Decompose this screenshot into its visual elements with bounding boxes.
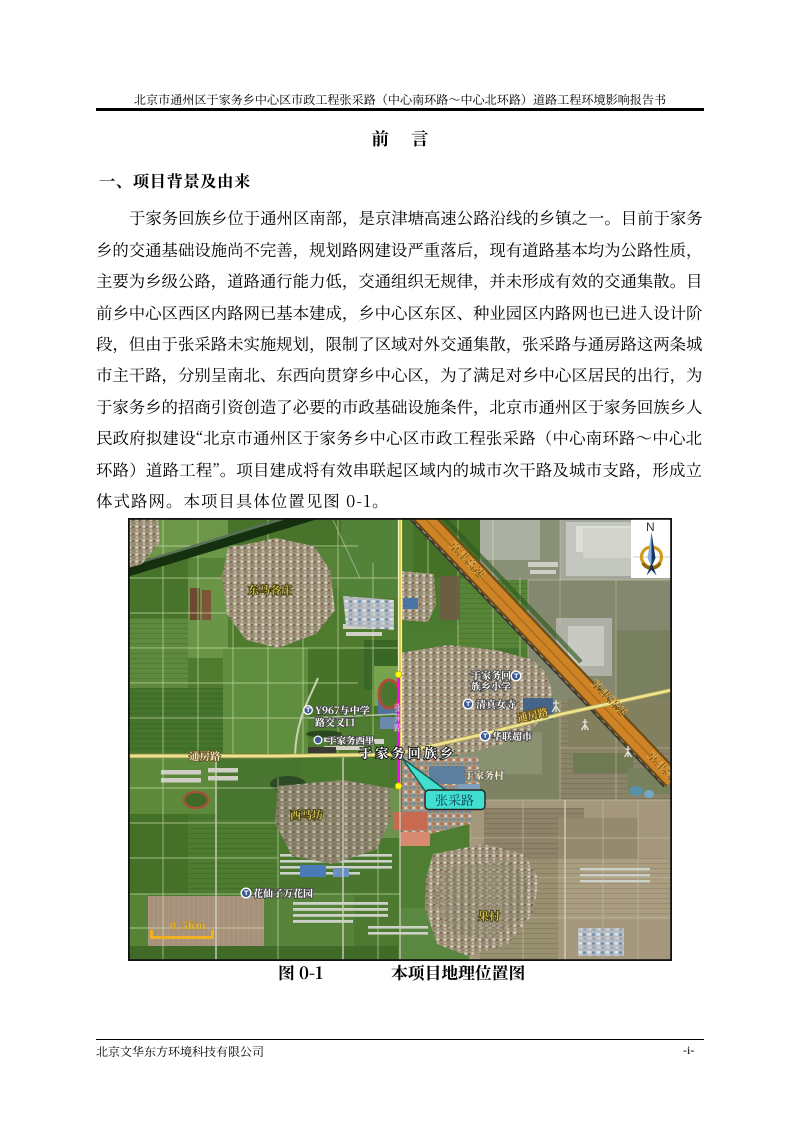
svg-text:通房路: 通房路	[189, 749, 221, 764]
svg-text:花仙子万花园: 花仙子万花园	[253, 885, 313, 900]
svg-text:路交叉口: 路交叉口	[315, 714, 355, 729]
svg-text:族乡小学: 族乡小学	[471, 678, 511, 693]
svg-text:清真女寺: 清真女寺	[476, 696, 516, 711]
svg-text:N: N	[646, 520, 655, 534]
svg-text:果村: 果村	[478, 908, 500, 924]
svg-text:于家务回族乡: 于家务回族乡	[359, 743, 456, 762]
svg-text:东马各庄: 东马各庄	[248, 582, 292, 598]
svg-text:路: 路	[394, 721, 403, 734]
svg-text:张采路: 张采路	[435, 790, 474, 809]
svg-text:0. 5Km: 0. 5Km	[170, 917, 205, 932]
svg-text:华联超市: 华联超市	[492, 728, 532, 743]
svg-text:于家务村: 于家务村	[464, 767, 504, 782]
svg-text:西马坊: 西马坊	[290, 807, 323, 823]
